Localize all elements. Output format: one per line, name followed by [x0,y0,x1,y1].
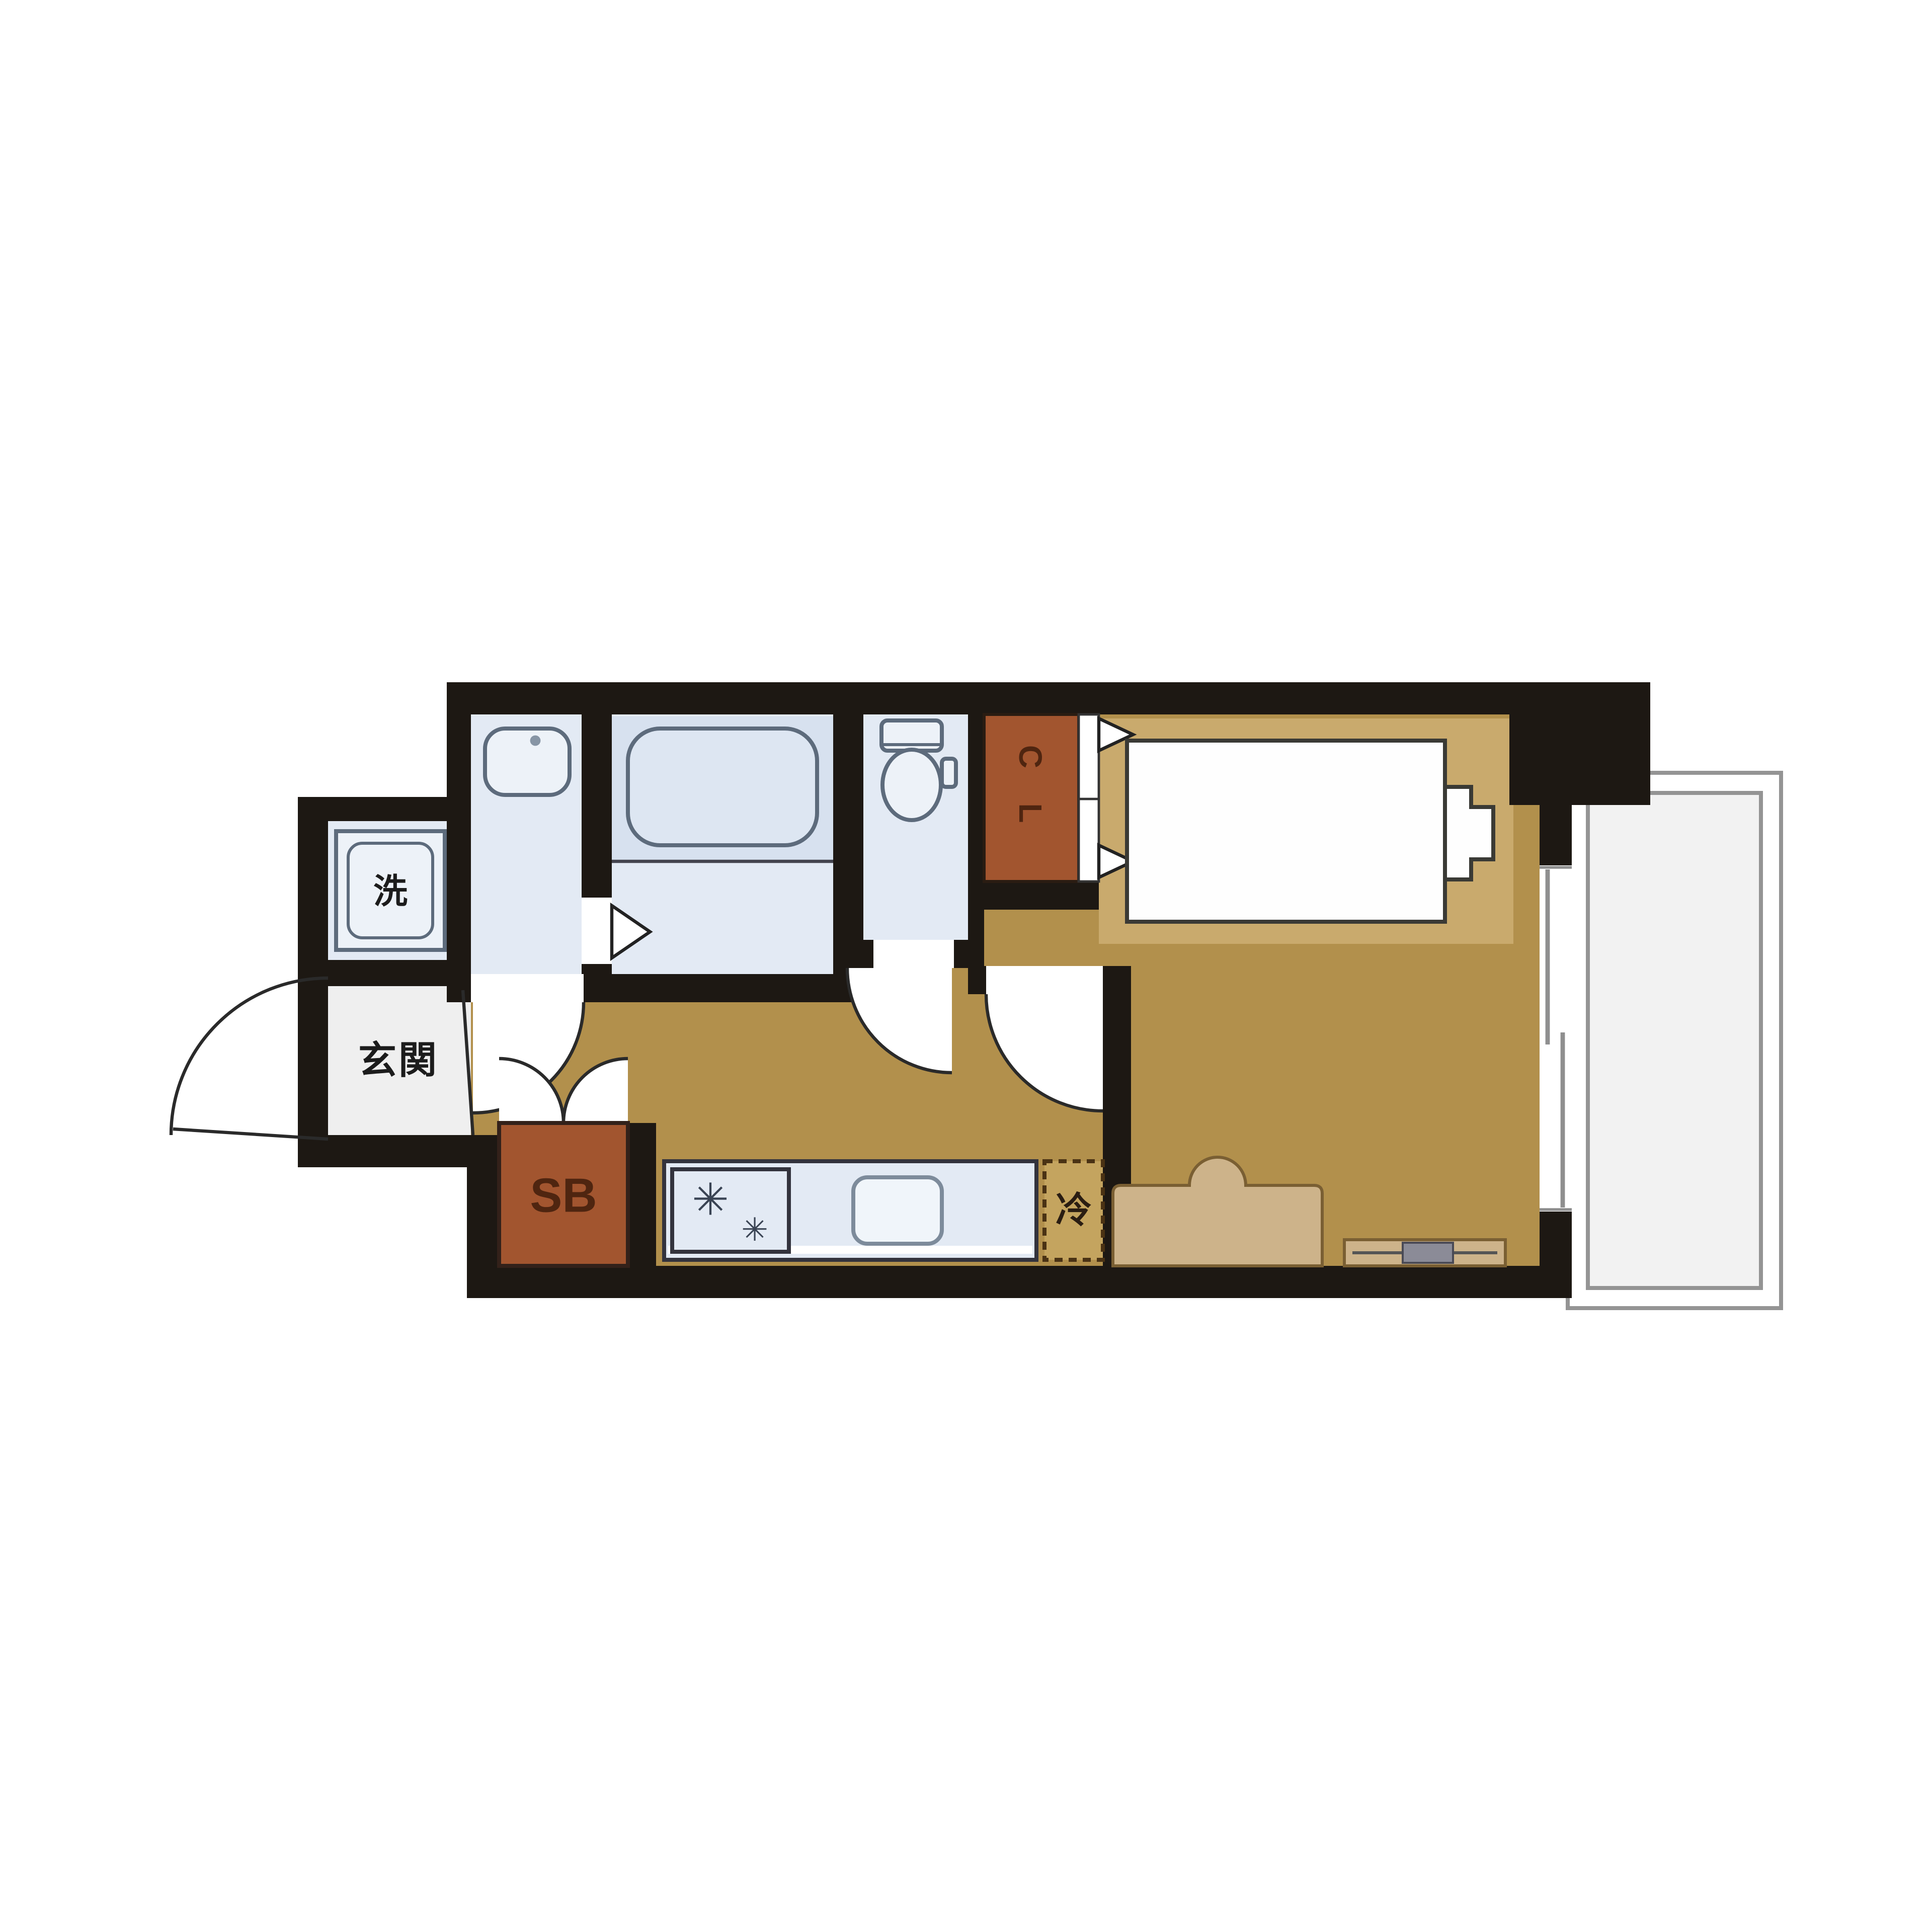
wall-bath-toilet-divider [833,714,863,974]
floor-plan: C L SB 冷 洗 ✳ ✳ [0,0,1932,1932]
wall-closet-bottom [968,881,1099,910]
kitchen-sink-icon [853,1177,942,1244]
balcony-window-opening [1540,865,1572,1212]
wall-top-right-block [1509,682,1650,805]
stove-burners-icon: ✳ [692,1175,729,1225]
tv-board [1344,1240,1505,1266]
wall-toilet-closet-divider [968,714,984,994]
wall-left-upper [447,682,471,1002]
wash-basin-icon [485,729,570,795]
balcony-inner-area [1588,793,1761,1288]
stove-box [672,1169,789,1252]
washroom-door-opening [471,974,584,1002]
laundry-machine: 洗 [336,831,445,950]
kitchen: ✳ ✳ [664,1161,1036,1260]
living-door-opening [986,966,1103,994]
bathtub-icon [628,729,817,845]
shoe-box: SB [499,1123,628,1266]
bed-icon [1127,741,1445,922]
tv-screen [1403,1243,1453,1263]
entrance-label: 玄関 [358,1039,439,1082]
closet-box [984,714,1079,881]
bed [1127,741,1493,922]
refrigerator-label: 冷 [1056,1190,1092,1231]
wall-top [447,682,1650,714]
wall-bottom [467,1266,1572,1298]
shoebox-label: SB [530,1169,597,1223]
toilet-icon [882,750,941,820]
basin-faucet-dot [530,736,541,746]
wall-shoebox-right [628,1123,656,1266]
refrigerator-space: 冷 [1044,1161,1103,1260]
wall-entrance-bottom [298,1135,499,1167]
toilet-door-opening [873,940,954,968]
closet-label-l: L [1012,803,1049,823]
stove-burner-small-icon: ✳ [741,1212,768,1248]
wall-laundry-entrance-divider [298,960,471,986]
balcony [1568,773,1781,1308]
toilet-side-unit [942,759,956,787]
bathroom-door-opening [582,898,612,964]
closet-label-c: C [1012,745,1049,768]
washroom-fixtures [485,729,570,795]
washing-machine-label: 洗 [373,872,408,911]
